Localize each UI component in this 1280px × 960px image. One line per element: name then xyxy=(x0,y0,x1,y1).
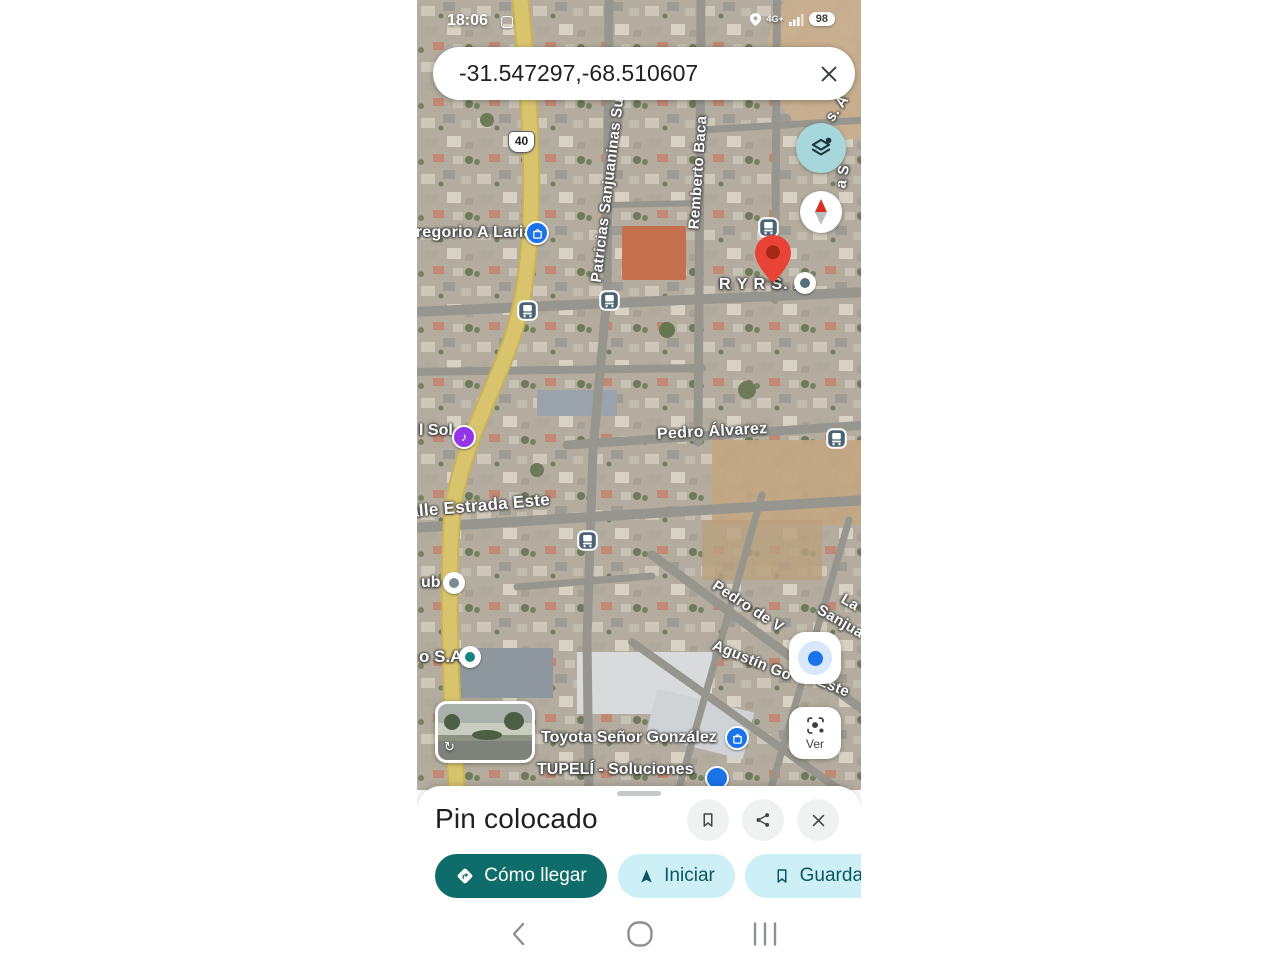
notification-icon xyxy=(501,16,513,28)
share-icon xyxy=(754,811,772,829)
street-view-360-icon: ↻ xyxy=(444,739,455,755)
navigation-arrow-icon xyxy=(638,868,655,885)
clock: 18:06 xyxy=(447,12,488,30)
home-button[interactable] xyxy=(610,908,670,960)
lens-ver-button[interactable]: Ver xyxy=(789,707,841,759)
thumbnail-tree xyxy=(504,712,524,730)
dropped-pin-icon[interactable] xyxy=(755,235,791,283)
ver-button-label: Ver xyxy=(806,737,824,751)
signal-bars-icon xyxy=(789,13,804,26)
home-circle-icon xyxy=(626,920,654,948)
poi-label-tupeli[interactable]: TUPELÍ - Soluciones xyxy=(537,761,693,779)
thumbnail-bush xyxy=(472,730,502,740)
back-button[interactable] xyxy=(488,908,548,960)
sheet-title: Pin colocado xyxy=(435,803,598,835)
save-place-button[interactable]: Guardar xyxy=(745,854,861,898)
my-location-halo xyxy=(798,641,832,675)
place-dot-ryrsa-icon[interactable] xyxy=(794,272,816,294)
bus-stop-icon[interactable] xyxy=(517,300,538,321)
store-poi-icon[interactable] xyxy=(525,221,549,245)
bus-stop-icon[interactable] xyxy=(826,428,847,449)
music-poi-icon[interactable]: ♪ xyxy=(452,425,476,449)
layers-icon xyxy=(808,135,834,161)
recents-bars-icon xyxy=(752,922,778,946)
compass-needle-icon xyxy=(811,198,831,226)
status-bar: 18:06 4G+ 98 xyxy=(417,0,861,42)
directions-button-label: Cómo llegar xyxy=(484,865,586,887)
my-location-button[interactable] xyxy=(789,632,841,684)
bookmark-icon xyxy=(773,867,791,885)
directions-icon xyxy=(455,866,475,886)
recents-button[interactable] xyxy=(735,908,795,960)
save-bookmark-button[interactable] xyxy=(687,799,729,841)
place-dot-club-icon[interactable] xyxy=(443,572,465,594)
bus-stop-icon[interactable] xyxy=(577,530,598,551)
start-button-label: Iniciar xyxy=(664,865,715,887)
route-40-shield: 40 xyxy=(508,131,535,153)
store-poi-toyota-icon[interactable] xyxy=(725,726,749,750)
system-navigation-bar xyxy=(417,908,861,960)
search-input[interactable]: -31.547297,-68.510607 xyxy=(459,60,807,87)
thumbnail-tree xyxy=(444,714,460,730)
compass-button[interactable] xyxy=(800,191,842,233)
layers-button[interactable] xyxy=(796,123,846,173)
poi-label-club[interactable]: ub xyxy=(421,574,441,592)
street-view-thumbnail[interactable]: ↻ xyxy=(435,701,535,763)
poi-label-sol[interactable]: l Sol xyxy=(419,422,453,440)
back-chevron-icon xyxy=(510,921,526,947)
place-dot-o-sa-icon[interactable] xyxy=(459,646,481,668)
location-active-icon xyxy=(750,13,761,26)
start-navigation-button[interactable]: Iniciar xyxy=(618,854,735,898)
camera-lens-icon xyxy=(805,715,826,736)
close-icon xyxy=(810,812,827,829)
clear-search-button[interactable] xyxy=(807,52,851,96)
share-button[interactable] xyxy=(742,799,784,841)
search-bar[interactable]: -31.547297,-68.510607 xyxy=(433,47,855,100)
phone-screen: 40 Gregorio A Laria Patricias Sanjuanina… xyxy=(417,0,861,960)
map-canvas[interactable]: 40 Gregorio A Laria Patricias Sanjuanina… xyxy=(417,0,861,790)
save-button-label: Guardar xyxy=(800,865,861,887)
action-chips-row: Cómo llegar Iniciar Guardar xyxy=(417,854,861,898)
poi-label-o-sa[interactable]: o S.A xyxy=(419,647,462,667)
network-type-label: 4G+ xyxy=(766,14,783,24)
my-location-dot-icon xyxy=(808,651,823,666)
battery-indicator: 98 xyxy=(809,12,835,26)
bus-stop-icon[interactable] xyxy=(599,290,620,311)
sheet-drag-handle[interactable] xyxy=(617,791,661,796)
close-icon xyxy=(818,63,840,85)
directions-button[interactable]: Cómo llegar xyxy=(435,854,607,898)
poi-label-toyota[interactable]: Toyota Señor González xyxy=(541,729,717,747)
close-sheet-button[interactable] xyxy=(797,799,839,841)
bottom-sheet: Pin colocado Cómo l xyxy=(417,786,861,908)
bookmark-icon xyxy=(699,811,717,829)
